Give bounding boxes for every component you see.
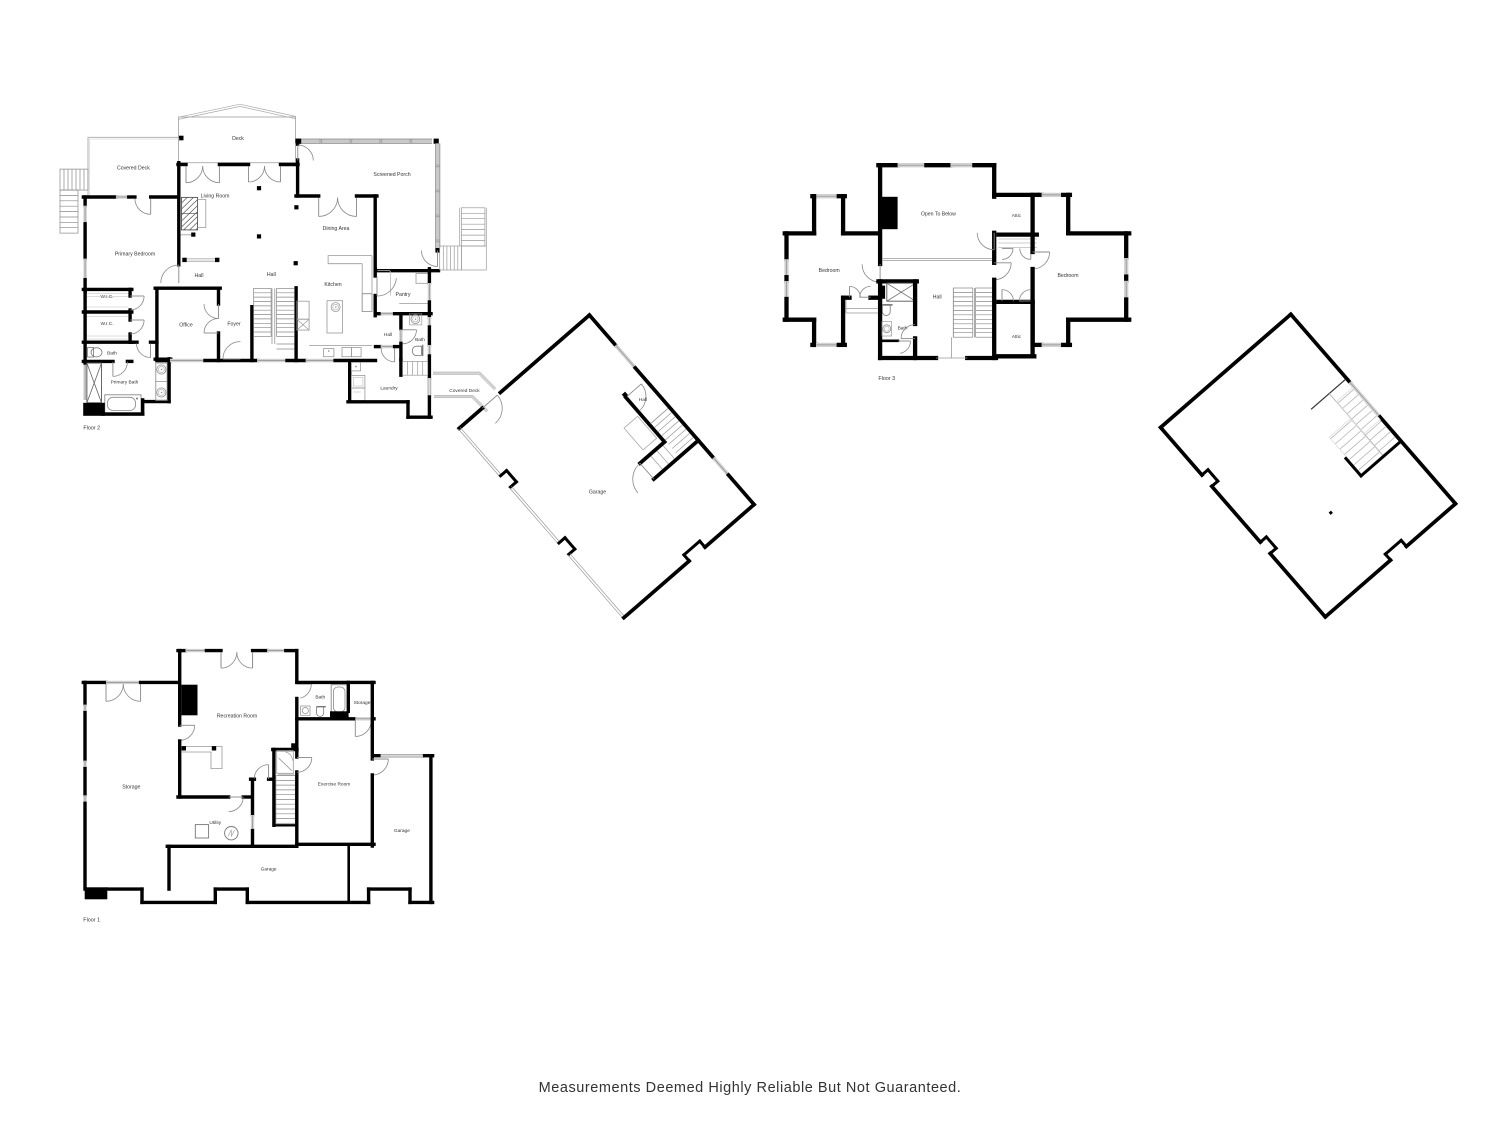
svg-text:Bath: Bath: [898, 326, 908, 332]
svg-text:Living Room: Living Room: [201, 194, 230, 200]
svg-text:Foyer: Foyer: [227, 321, 241, 327]
svg-text:Covered Deck: Covered Deck: [449, 388, 480, 394]
svg-text:Recreation Room: Recreation Room: [217, 714, 257, 720]
svg-text:Bath: Bath: [107, 351, 117, 357]
svg-text:Hall: Hall: [933, 294, 942, 300]
svg-text:Storage: Storage: [122, 785, 140, 791]
svg-text:Office: Office: [179, 322, 193, 328]
svg-text:Hall: Hall: [384, 332, 392, 338]
svg-text:Bedroom: Bedroom: [819, 268, 840, 274]
svg-text:Attic: Attic: [1012, 213, 1022, 219]
svg-text:Exercise Room: Exercise Room: [318, 781, 351, 787]
svg-text:Storage: Storage: [354, 700, 371, 706]
svg-text:Floor 3: Floor 3: [878, 376, 895, 382]
svg-text:Hall: Hall: [639, 397, 647, 403]
svg-text:Hall: Hall: [267, 272, 276, 278]
svg-text:Primary Bath: Primary Bath: [111, 380, 139, 386]
svg-text:Pantry: Pantry: [396, 292, 411, 298]
svg-text:Covered Deck: Covered Deck: [117, 166, 150, 172]
svg-text:Hall: Hall: [195, 273, 204, 279]
svg-text:Utility: Utility: [209, 820, 221, 826]
svg-text:Kitchen: Kitchen: [324, 282, 341, 288]
svg-text:Floor 1: Floor 1: [83, 917, 100, 923]
svg-text:Deck: Deck: [232, 136, 244, 142]
svg-text:Measurements Deemed Highly Rel: Measurements Deemed Highly Reliable But …: [539, 1080, 962, 1096]
svg-text:Bath: Bath: [315, 695, 325, 701]
svg-text:Bedroom: Bedroom: [1057, 273, 1078, 279]
svg-text:Primary Bedroom: Primary Bedroom: [115, 252, 155, 258]
svg-text:Screened Porch: Screened Porch: [373, 172, 410, 178]
svg-text:W.I.C.: W.I.C.: [100, 321, 113, 327]
svg-text:Garage: Garage: [261, 867, 277, 873]
svg-text:Garage: Garage: [589, 490, 606, 496]
svg-text:Open To Below: Open To Below: [921, 212, 956, 218]
svg-text:Garage: Garage: [394, 828, 410, 834]
svg-text:Attic: Attic: [1012, 334, 1022, 340]
svg-text:Bath: Bath: [415, 337, 425, 343]
svg-text:Floor 2: Floor 2: [83, 426, 100, 432]
svg-text:Laundry: Laundry: [380, 385, 398, 391]
svg-text:Dining Area: Dining Area: [323, 226, 350, 232]
